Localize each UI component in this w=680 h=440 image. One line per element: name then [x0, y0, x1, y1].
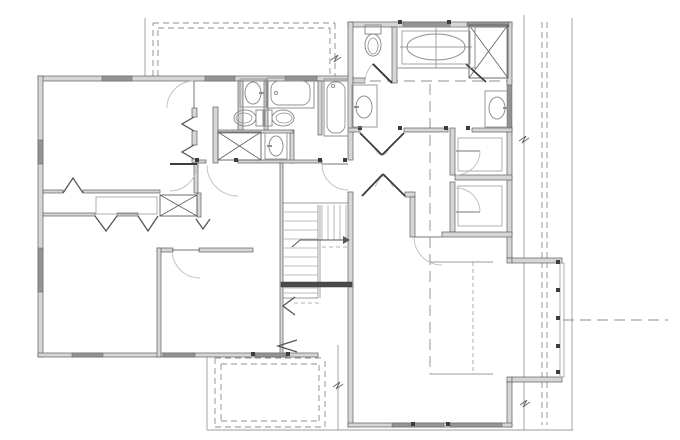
door-leaf	[382, 133, 404, 155]
cabinet-outline	[96, 197, 157, 214]
wall-segment	[290, 130, 294, 163]
wall-segment	[192, 131, 197, 145]
line-break-symbol	[333, 382, 343, 389]
window	[450, 423, 502, 427]
window	[255, 353, 287, 357]
wall-segment	[157, 248, 161, 357]
wall-segment	[455, 175, 512, 180]
jamb-block	[447, 20, 451, 24]
wall-segment	[512, 258, 562, 263]
wall-segment	[353, 78, 365, 83]
wall-segment	[450, 182, 455, 232]
wall-segment	[43, 190, 63, 193]
door-swing-arc	[207, 165, 238, 196]
wall-segment	[199, 248, 253, 252]
bifold-door-chevron	[182, 145, 194, 159]
line-break-symbol	[331, 55, 341, 62]
wall-segment	[38, 76, 43, 357]
wall-segment	[507, 258, 512, 263]
door-swing-arc	[365, 64, 373, 83]
wall-segment	[43, 213, 95, 216]
window	[163, 353, 195, 357]
wall-segment	[507, 377, 512, 382]
jamb-block	[446, 422, 450, 426]
jamb-block	[234, 158, 238, 162]
toilet	[365, 25, 381, 56]
bifold-door-chevron	[283, 297, 295, 315]
wall-segment	[442, 232, 512, 237]
bathtub-inner	[327, 82, 345, 133]
jamb-block	[556, 344, 560, 348]
tub-faucet	[274, 91, 277, 94]
door-leaf	[360, 133, 382, 155]
window	[205, 76, 235, 81]
wall-segment	[280, 163, 283, 357]
window	[38, 248, 43, 292]
wall-segment	[213, 107, 218, 163]
jamb-block	[195, 158, 199, 162]
jamb-block	[556, 288, 560, 292]
bifold-door-chevron	[63, 178, 83, 193]
jamb-block	[251, 352, 255, 356]
jamb-block	[556, 316, 560, 320]
wall-segment	[512, 377, 562, 382]
door-leaf	[373, 64, 392, 83]
stair-edge-wall	[281, 282, 352, 287]
door-swing-arc	[172, 250, 200, 278]
sink-basin	[245, 82, 261, 104]
window	[392, 423, 444, 427]
jamb-block	[398, 126, 402, 130]
wall-segment	[318, 81, 322, 135]
bifold-door-chevron	[138, 216, 158, 231]
window	[72, 353, 103, 357]
line-break-symbol	[519, 136, 529, 143]
jamb-block	[466, 126, 470, 130]
door-swing-arc	[167, 81, 194, 108]
wall-segment	[194, 163, 198, 193]
door-leaf	[383, 174, 405, 196]
wall-segment	[472, 128, 512, 132]
wall-segment	[450, 128, 455, 175]
jamb-block	[556, 260, 560, 264]
door-swing-arc	[456, 188, 480, 212]
jamb-block	[444, 126, 448, 130]
bifold-door-chevron	[95, 216, 117, 231]
door-swing-arc	[322, 164, 348, 190]
wall-segment	[405, 192, 415, 197]
wall-segment	[348, 192, 353, 427]
wall-segment	[192, 108, 197, 117]
wall-segment	[197, 193, 201, 217]
line-break-symbol	[520, 400, 530, 407]
window	[38, 140, 43, 164]
window	[467, 22, 509, 27]
stair-direction-arrow	[292, 240, 343, 247]
bathtub-inner	[271, 81, 310, 105]
cabinet-outline	[458, 186, 502, 226]
jamb-block	[398, 20, 402, 24]
jamb-block	[343, 158, 347, 162]
wall-segment	[410, 197, 415, 237]
jamb-block	[411, 422, 415, 426]
wall-segment	[507, 382, 512, 427]
floor-plan-canvas	[0, 0, 680, 440]
wall-segment	[404, 128, 448, 132]
wall-segment	[83, 190, 160, 193]
window	[102, 76, 132, 81]
sink-basin	[489, 97, 505, 119]
window	[403, 22, 450, 27]
bifold-door-chevron	[182, 117, 194, 131]
wall-segment	[392, 27, 397, 83]
wall-segment	[117, 213, 138, 216]
wall-segment	[507, 127, 512, 258]
door-swing-arc	[414, 237, 442, 265]
jamb-block	[556, 370, 560, 374]
tub-faucet	[331, 84, 334, 87]
door-leaf	[362, 174, 383, 196]
door-swing-arc	[170, 164, 197, 191]
jamb-block	[286, 352, 290, 356]
bifold-door-chevron	[196, 219, 210, 229]
floor-plan-drawing	[0, 0, 680, 440]
jamb-block	[318, 158, 322, 162]
